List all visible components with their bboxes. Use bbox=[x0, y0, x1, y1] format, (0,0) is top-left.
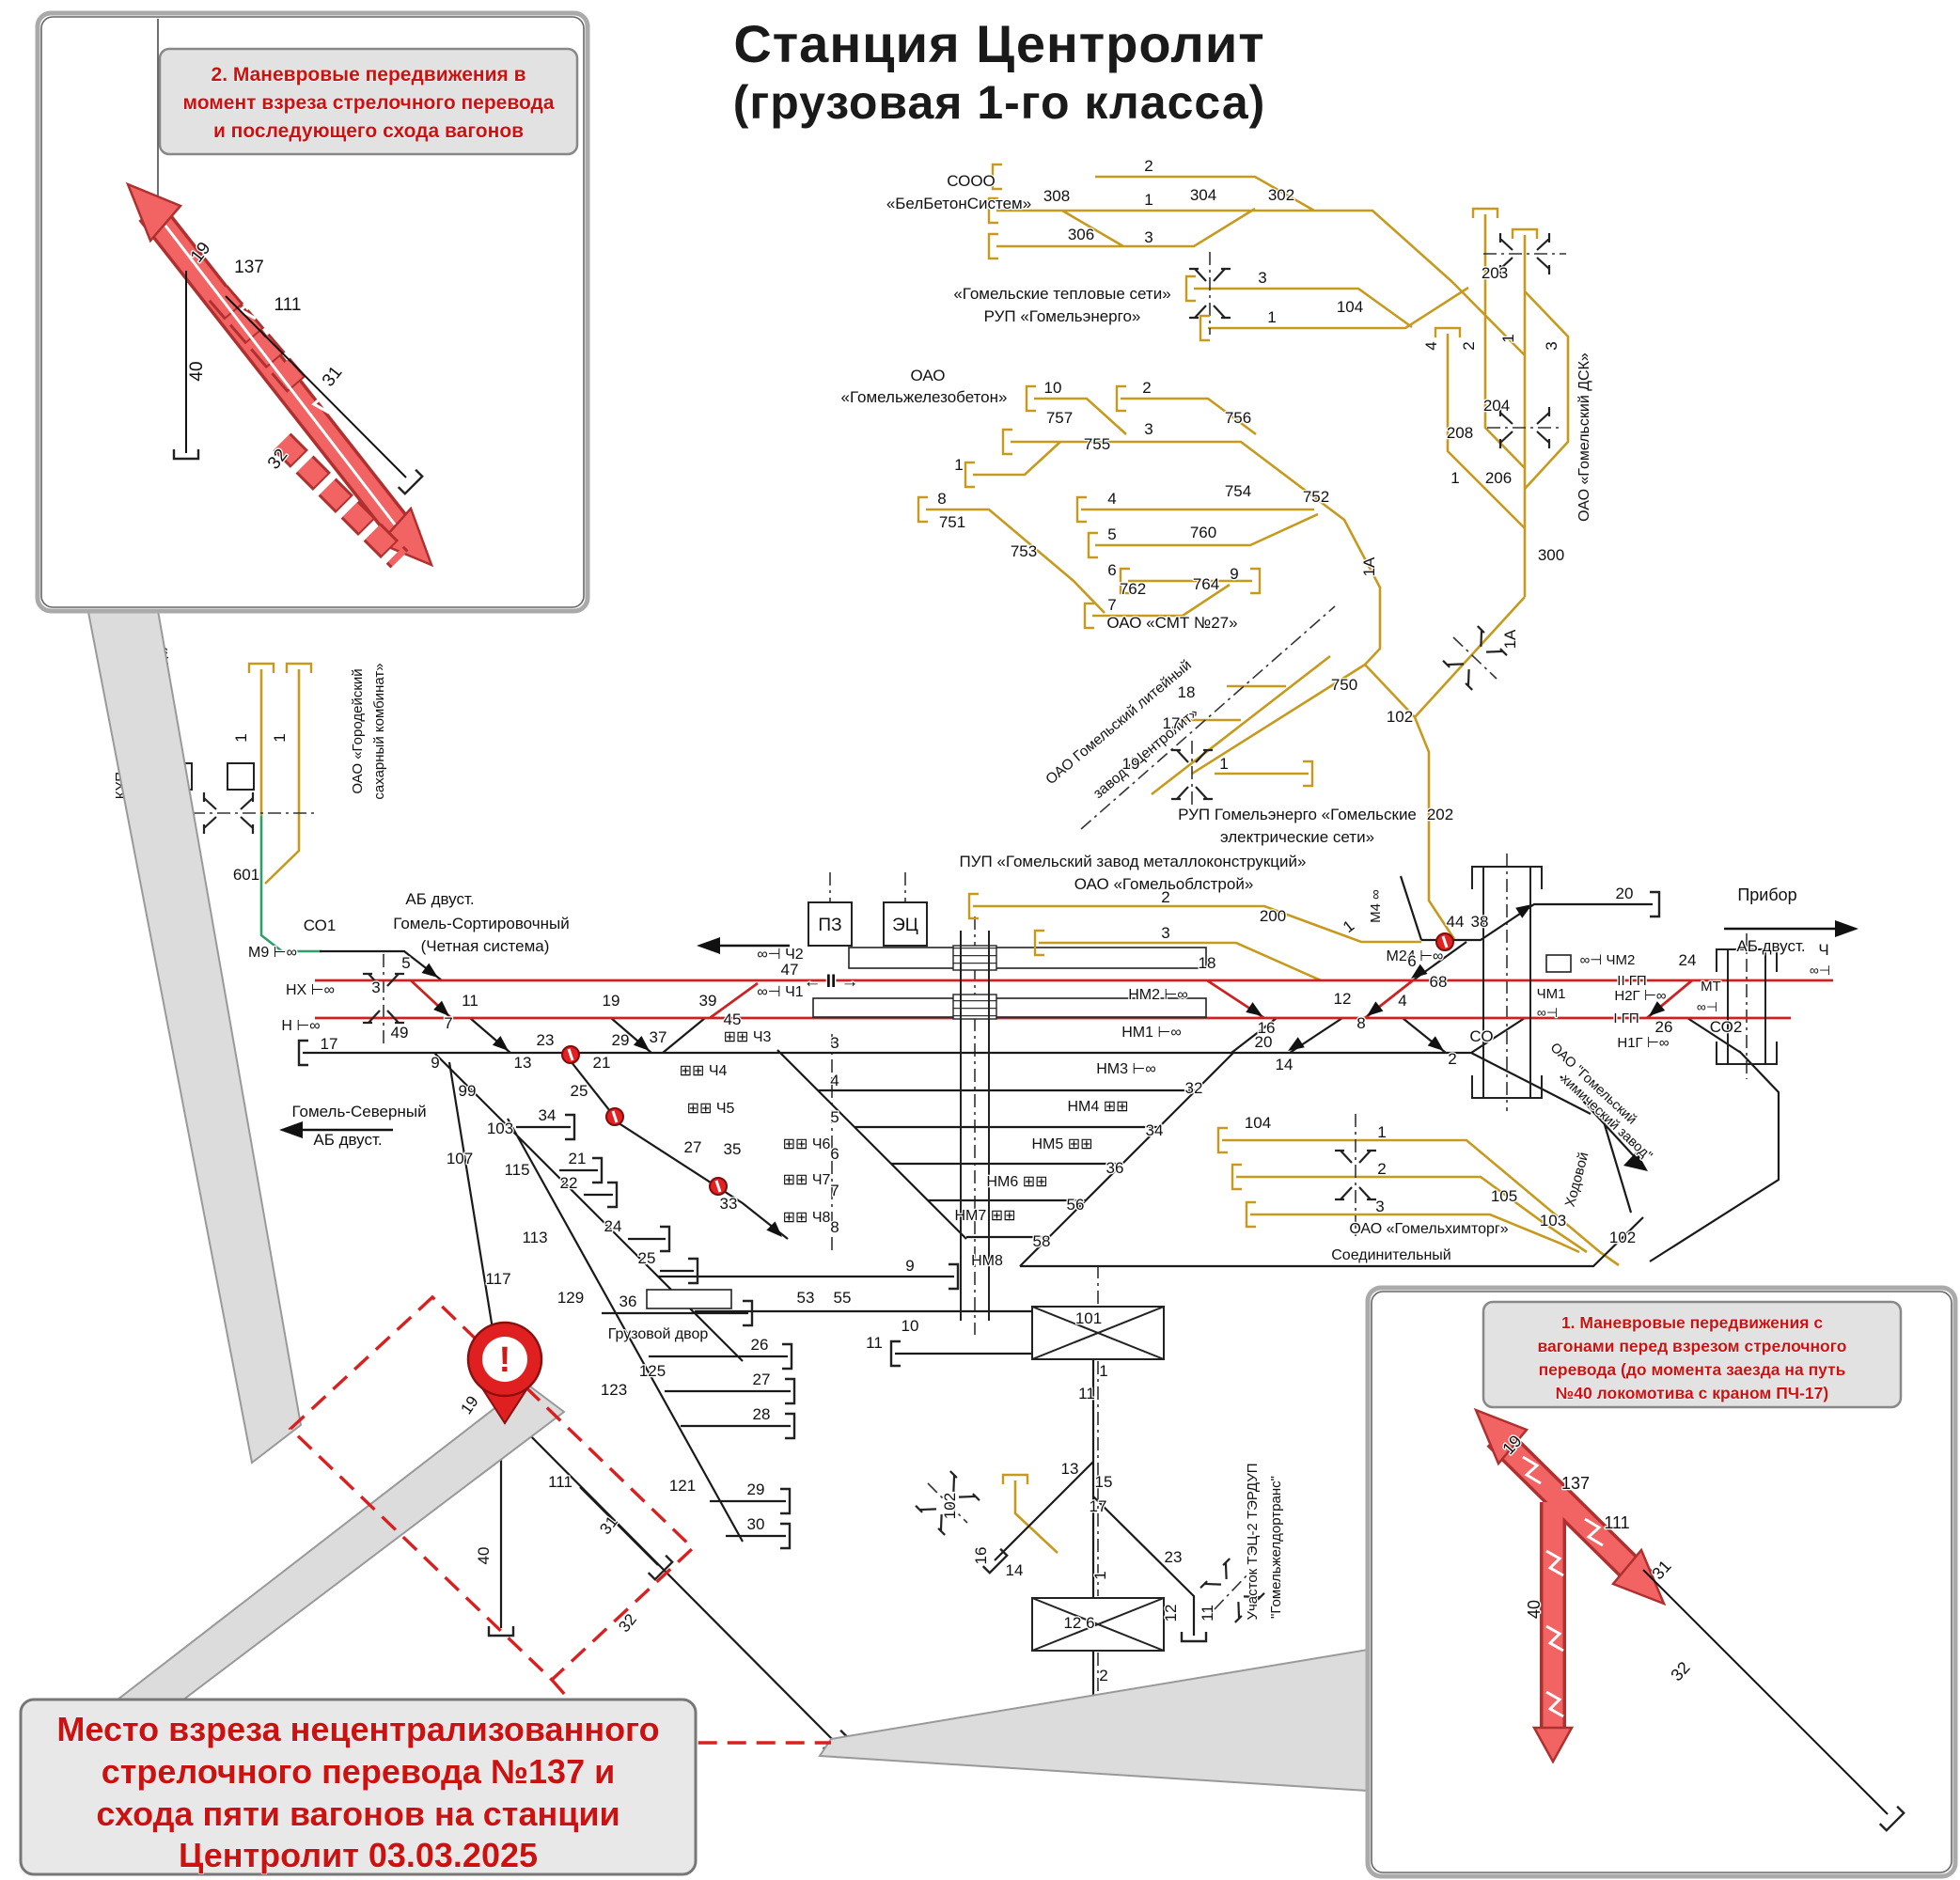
diagram-label: ⊞⊞ Ч7 bbox=[783, 1172, 831, 1188]
diagram-label: 4 bbox=[1398, 992, 1406, 1010]
diagram-label: 58 bbox=[1033, 1232, 1051, 1250]
inset-before-derailment: 19137111403132 1. Маневровые передвижени… bbox=[1368, 1288, 1955, 1876]
incident-note-line: Центролит 03.03.2025 bbox=[179, 1836, 538, 1874]
diagram-label: 102 bbox=[1609, 1229, 1636, 1246]
diagram-label: НМ6 ⊞⊞ bbox=[986, 1174, 1047, 1190]
diagram-label: 107 bbox=[447, 1150, 473, 1167]
diagram-label: ПУП «Гомельский завод металлоконструкций… bbox=[959, 853, 1306, 870]
diagram-label: Гомель-Северный bbox=[291, 1103, 426, 1120]
diagram-label: 300 bbox=[1538, 546, 1564, 564]
diagram-label: 3 bbox=[830, 1034, 839, 1052]
diagram-label: 3 bbox=[1375, 1198, 1384, 1215]
diagram-label: 203 bbox=[1482, 264, 1508, 282]
diagram-label: 26 bbox=[751, 1336, 769, 1354]
diagram-label: ⊞⊞ Ч6 bbox=[783, 1136, 831, 1152]
incident-note-line: схода пяти вагонов на станции bbox=[96, 1794, 619, 1833]
diagram-label: 4 bbox=[830, 1072, 839, 1089]
diagram-label: 1 bbox=[1377, 1123, 1386, 1141]
diagram-label: 34 bbox=[1146, 1121, 1164, 1139]
diagram-label: 9 bbox=[1230, 565, 1238, 583]
diagram-label: 754 bbox=[1225, 482, 1251, 500]
diagram-label: 2 bbox=[1161, 888, 1169, 906]
diagram-label: 56 bbox=[1067, 1196, 1085, 1214]
inset1-title-line: перевода (до момента заезда на путь bbox=[1539, 1360, 1846, 1379]
diagram-label: 11 bbox=[462, 992, 478, 1010]
diagram-label: 757 bbox=[1046, 409, 1073, 427]
diagram-label: 24 bbox=[604, 1217, 622, 1235]
diagram-label: 33 bbox=[720, 1195, 738, 1213]
diagram-label: 123 bbox=[601, 1381, 627, 1399]
diagram-label: 20 bbox=[1255, 1033, 1273, 1051]
diagram-label: 202 bbox=[1427, 806, 1453, 823]
diagram-label: 753 bbox=[1011, 542, 1037, 560]
diagram-label: 53 bbox=[797, 1289, 815, 1307]
diagram-label: 44 bbox=[1447, 913, 1465, 931]
inset1-title-line: 1. Маневровые передвижения с bbox=[1561, 1313, 1823, 1332]
diagram-label: 68 bbox=[1430, 973, 1448, 991]
page-title-line1: Станция Центролит bbox=[733, 14, 1264, 73]
diagram-label: 29 bbox=[747, 1480, 765, 1498]
diagram-label: ОАО «Гомельхимторг» bbox=[1349, 1221, 1508, 1237]
diagram-label: 6 bbox=[1407, 952, 1416, 970]
diagram-label: РУП Гомельэнерго «Гомельские bbox=[1178, 806, 1417, 823]
diagram-label: 2 bbox=[1460, 341, 1478, 350]
diagram-label: 11 bbox=[1199, 1605, 1216, 1621]
diagram-label: электрические сети» bbox=[1220, 828, 1374, 846]
diagram-label: Грузовой двор bbox=[608, 1326, 709, 1342]
inset1-title-line: вагонами перед взрезом стрелочного bbox=[1537, 1337, 1846, 1355]
diagram-label: ⊞⊞ Ч5 bbox=[687, 1101, 735, 1117]
diagram-label: 601 bbox=[233, 866, 259, 884]
incident-note: Место взреза нецентрализованного стрелоч… bbox=[21, 1700, 696, 1874]
diagram-label: ОАО «Городейский bbox=[350, 668, 366, 793]
diagram-label: 751 bbox=[939, 513, 965, 531]
diagram-label: РУП «Гомельэнерго» bbox=[984, 307, 1141, 325]
diagram-label: I ГП bbox=[1613, 1010, 1639, 1026]
diagram-label: 308 bbox=[1043, 187, 1070, 205]
diagram-label: НМ2 ⊢∞ bbox=[1128, 987, 1188, 1003]
diagram-label: 2 bbox=[1144, 157, 1152, 175]
diagram-label: "Гомельжелдортранс" bbox=[1268, 1476, 1284, 1619]
diagram-label: АБ двуст. bbox=[405, 890, 474, 908]
diagram-label: 9 bbox=[905, 1257, 914, 1275]
diagram-label: СО2 bbox=[1710, 1018, 1743, 1036]
diagram-label: НМ7 ⊞⊞ bbox=[954, 1208, 1015, 1224]
diagram-label: 14 bbox=[1006, 1561, 1024, 1579]
diagram-label: 40 bbox=[187, 361, 207, 381]
diagram-label: 756 bbox=[1225, 409, 1251, 427]
diagram-label: Н ⊢∞ bbox=[281, 1018, 320, 1034]
diagram-label: 32 bbox=[615, 1610, 640, 1636]
diagram-label: 15 bbox=[1095, 1473, 1113, 1491]
diagram-label: 20 bbox=[1616, 885, 1634, 902]
diagram-label: ОАО «СМТ №27» bbox=[1106, 614, 1237, 632]
diagram-label: НХ ⊢∞ bbox=[286, 982, 335, 998]
diagram-label: Н1Г ⊢∞ bbox=[1617, 1035, 1670, 1051]
diagram-label: МТ bbox=[1701, 979, 1721, 995]
diagram-label: ЧМ1 bbox=[1537, 986, 1566, 1002]
incident-note-line: стрелочного перевода №137 и bbox=[102, 1752, 615, 1791]
incident-note-line: Место взреза нецентрализованного bbox=[56, 1710, 659, 1748]
inset2-title-line: 2. Маневровые передвижения в bbox=[212, 64, 526, 86]
diagram-label: 9 bbox=[431, 1054, 439, 1072]
diagram-label: 6 bbox=[1107, 561, 1116, 579]
diagram-label: ⊞⊞ Ч3 bbox=[724, 1029, 772, 1045]
diagram-label: 12 bbox=[1162, 1605, 1180, 1622]
diagram-label: ПЗ bbox=[818, 916, 841, 935]
diagram-label: «БелБетонСистем» bbox=[886, 195, 1031, 212]
diagram-label: 4 bbox=[1422, 341, 1440, 350]
diagram-label: 760 bbox=[1190, 524, 1216, 541]
diagram-label: 111 bbox=[1604, 1513, 1629, 1532]
diagram-label: ← II → bbox=[803, 972, 858, 992]
diagram-label: 1 bbox=[954, 456, 963, 474]
diagram-label: 36 bbox=[619, 1292, 637, 1310]
diagram-label: НМ8 bbox=[971, 1253, 1003, 1269]
diagram-label: 7 bbox=[830, 1182, 839, 1199]
diagram-label: 102 bbox=[941, 1493, 959, 1519]
diagram-label: 2 bbox=[1099, 1667, 1107, 1684]
diagram-label: 121 bbox=[669, 1477, 696, 1495]
diagram-label: 26 bbox=[1655, 1018, 1673, 1036]
diagram-label: 37 bbox=[650, 1028, 667, 1046]
diagram-label: (Четная система) bbox=[421, 937, 550, 955]
diagram-label: 1 bbox=[1219, 755, 1228, 773]
diagram-label: 23 bbox=[1165, 1548, 1183, 1566]
diagram-label: НМ5 ⊞⊞ bbox=[1031, 1136, 1092, 1152]
diagram-label: 750 bbox=[1331, 676, 1357, 694]
diagram-label: 10 bbox=[1044, 379, 1062, 397]
diagram-label: 7 bbox=[444, 1014, 452, 1032]
diagram-label: 1 bbox=[1450, 469, 1459, 487]
diagram-label: 32 bbox=[1185, 1079, 1203, 1097]
diagram-label: 24 bbox=[1679, 951, 1697, 969]
diagram-label: 115 bbox=[504, 1161, 529, 1179]
diagram-label: 18 bbox=[1178, 683, 1196, 701]
diagram-label: ⊞⊞ Ч8 bbox=[783, 1210, 831, 1226]
diagram-label: 31 bbox=[596, 1512, 621, 1538]
diagram-label: 5 bbox=[830, 1108, 839, 1126]
diagram-label: 113 bbox=[522, 1229, 547, 1246]
diagram-label: АБ двуст. bbox=[313, 1131, 382, 1149]
diagram-label: М4 ∞ bbox=[1368, 889, 1384, 923]
inset1-title-line: №40 локомотива с краном ПЧ-17) bbox=[1556, 1384, 1828, 1402]
diagram-label: НМ1 ⊢∞ bbox=[1121, 1025, 1182, 1041]
diagram-label: 200 bbox=[1260, 907, 1286, 925]
diagram-label: Соединительный bbox=[1331, 1247, 1451, 1263]
diagram-label: ∞⊣ bbox=[1810, 963, 1830, 978]
diagram-label: 2 bbox=[1377, 1160, 1386, 1178]
diagram-label: ∞⊣ ЧМ2 bbox=[1580, 952, 1636, 968]
diagram-label: 99 bbox=[459, 1082, 477, 1100]
diagram-label: 102 bbox=[1387, 708, 1413, 726]
diagram-label: 111 bbox=[548, 1473, 572, 1491]
diagram-label: 101 bbox=[1075, 1309, 1102, 1327]
diagram-label: 8 bbox=[937, 490, 946, 508]
diagram-label: 45 bbox=[724, 1010, 742, 1028]
diagram-label: 36 bbox=[1106, 1159, 1124, 1177]
diagram-label: 1А bbox=[1360, 556, 1378, 576]
diagram-label: 1 bbox=[232, 733, 250, 742]
diagram-label: 2 bbox=[1142, 379, 1151, 397]
diagram-label: 1 bbox=[1091, 1571, 1109, 1579]
diagram-label: 30 bbox=[747, 1515, 765, 1533]
diagram-label: 35 bbox=[724, 1140, 742, 1158]
callout-wedges bbox=[59, 461, 1368, 1791]
diagram-label: 103 bbox=[1540, 1212, 1566, 1230]
diagram-label: 13 bbox=[514, 1054, 532, 1072]
diagram-label: 25 bbox=[571, 1082, 588, 1100]
diagram-label: ОАО bbox=[910, 367, 945, 384]
diagram-label: 49 bbox=[391, 1024, 409, 1042]
diagram-label: 3 bbox=[1161, 924, 1169, 942]
pin-exclamation: ! bbox=[499, 1340, 511, 1380]
inset2-title-line: и последующего схода вагонов bbox=[213, 120, 524, 142]
diagram-label: Ходовой bbox=[1562, 1151, 1592, 1209]
diagram-label: 111 bbox=[274, 295, 302, 315]
diagram-label: 755 bbox=[1084, 435, 1110, 453]
diagram-label: Ч bbox=[1818, 941, 1828, 959]
diagram-label: 38 bbox=[1471, 913, 1489, 931]
diagram-label: 204 bbox=[1483, 397, 1510, 415]
diagram-label: АБ двуст. bbox=[1736, 937, 1805, 955]
diagram-label: ∞⊣ bbox=[1697, 999, 1717, 1014]
diagram-label: 29 bbox=[612, 1031, 630, 1049]
diagram-label: 11 bbox=[866, 1334, 883, 1352]
station-track-diagram: СООО«БелБетонСистем»308213304306302«Гоме… bbox=[0, 0, 1960, 1880]
diagram-label: 27 bbox=[684, 1138, 702, 1156]
diagram-label: 137 bbox=[1561, 1474, 1590, 1493]
diagram-label: 22 bbox=[560, 1174, 578, 1192]
diagram-label: «Гомельские тепловые сети» bbox=[953, 285, 1170, 303]
diagram-label: 5 bbox=[1107, 525, 1116, 543]
diagram-label: СО bbox=[1469, 1027, 1493, 1045]
diagram-label: СООО bbox=[947, 172, 996, 190]
diagram-label: 17 bbox=[321, 1035, 338, 1053]
diagram-label: 105 bbox=[1491, 1187, 1517, 1205]
diagram-label: 21 bbox=[593, 1054, 611, 1072]
diagram-label: завод «Центролит» bbox=[1090, 705, 1201, 802]
diagram-label: М9 ⊢∞ bbox=[248, 945, 297, 961]
diagram-label: 125 bbox=[639, 1362, 666, 1380]
diagram-label: 17 bbox=[1163, 714, 1181, 732]
diagram-label: Гомель-Сортировочный bbox=[393, 915, 569, 932]
diagram-label: 55 bbox=[834, 1289, 852, 1307]
diagram-label: СО1 bbox=[304, 916, 337, 934]
diagram-label: 21 bbox=[569, 1150, 587, 1167]
diagram-label: 23 bbox=[537, 1031, 555, 1049]
diagram-label: 1 bbox=[1099, 1362, 1107, 1380]
diagram-label: 208 bbox=[1447, 424, 1473, 442]
diagram-label: 25 bbox=[638, 1249, 656, 1267]
diagram-label: 104 bbox=[1337, 298, 1363, 316]
diagram-label: «Гомельжелезобетон» bbox=[841, 388, 1008, 406]
diagram-label: 6 bbox=[830, 1145, 839, 1163]
page-title-line2: (грузовая 1-го класса) bbox=[733, 76, 1266, 129]
diagram-label: 10 bbox=[902, 1317, 919, 1335]
diagram-label: 752 bbox=[1303, 488, 1329, 506]
diagram-label: 5 bbox=[401, 954, 410, 972]
diagram-label: 40 bbox=[1525, 1600, 1544, 1619]
diagram-label: 19 bbox=[457, 1393, 481, 1418]
diagram-label: 762 bbox=[1120, 580, 1146, 598]
diagram-label: 3 bbox=[371, 979, 380, 996]
diagram-label: ЭЦ bbox=[892, 916, 918, 935]
diagram-label: 27 bbox=[753, 1371, 771, 1388]
diagram-label: 1 bbox=[1267, 308, 1276, 326]
diagram-label: 4 bbox=[1107, 490, 1116, 508]
diagram-label: ∞⊣ bbox=[1537, 1005, 1558, 1020]
diagram-label: 2 bbox=[1448, 1050, 1456, 1068]
diagram-label: 28 bbox=[753, 1405, 771, 1423]
diagram-label: 19 bbox=[1122, 755, 1140, 773]
diagram-label: 11 bbox=[1078, 1385, 1095, 1402]
diagram-label: 3 bbox=[1258, 269, 1266, 287]
diagram-label: 1 bbox=[1144, 191, 1152, 209]
diagram-label: 7 bbox=[1107, 596, 1116, 614]
diagram-label: ∞⊣ Ч1 bbox=[757, 984, 803, 1000]
diagram-label: ОАО «Гомельский ДСК» bbox=[1576, 352, 1592, 522]
diagram-label: 3 bbox=[1144, 420, 1152, 438]
diagram-label: 1 bbox=[1499, 334, 1517, 342]
diagram-label: 40 bbox=[475, 1547, 493, 1565]
diagram-label: 1 bbox=[271, 733, 289, 742]
diagram-label: 8 bbox=[830, 1218, 839, 1236]
diagram-label: 19 bbox=[603, 992, 620, 1010]
page-title: Станция Центролит (грузовая 1-го класса) bbox=[733, 14, 1266, 129]
diagram-label: 8 bbox=[1356, 1014, 1365, 1032]
diagram-label: Участок ТЭЦ-2 ТЭРДУП bbox=[1245, 1463, 1261, 1620]
diagram-label: 17 bbox=[1090, 1497, 1107, 1515]
inset-derailment-moment: 19137111403132 2. Маневровые передвижени… bbox=[38, 13, 588, 611]
diagram-label: 12 6 bbox=[1063, 1614, 1094, 1632]
diagram-label: 137 bbox=[234, 258, 264, 277]
diagram-label: Н2Г ⊢∞ bbox=[1614, 988, 1667, 1004]
diagram-label: 103 bbox=[487, 1120, 513, 1137]
diagram-label: НМ4 ⊞⊞ bbox=[1067, 1099, 1128, 1115]
diagram-label: сахарный комбинат» bbox=[371, 663, 387, 799]
diagram-label: 117 bbox=[485, 1270, 510, 1288]
diagram-label: 14 bbox=[1276, 1056, 1294, 1073]
diagram-label: 13 bbox=[1061, 1460, 1079, 1478]
diagram-label: 302 bbox=[1268, 186, 1294, 204]
diagram-label: ⊞⊞ Ч4 bbox=[680, 1063, 728, 1079]
inset2-title-line: момент взреза стрелочного перевода bbox=[182, 92, 554, 114]
diagram-label: 129 bbox=[557, 1289, 584, 1307]
diagram-label: 1 bbox=[1340, 916, 1357, 936]
diagram-label: II ГП bbox=[1617, 973, 1646, 989]
diagram-label: 206 bbox=[1485, 469, 1512, 487]
diagram-label: 18 bbox=[1199, 954, 1216, 972]
diagram-label: 34 bbox=[539, 1106, 557, 1124]
diagram-label: 1А bbox=[1501, 629, 1519, 649]
diagram-label: НМ3 ⊢∞ bbox=[1096, 1061, 1156, 1077]
diagram-label: 47 bbox=[781, 961, 799, 979]
diagram-label: 764 bbox=[1193, 575, 1219, 593]
diagram-label: 12 bbox=[1334, 990, 1352, 1008]
diagram-label: 39 bbox=[699, 992, 717, 1010]
diagram-label: 3 bbox=[1144, 228, 1152, 246]
diagram-label: 3 bbox=[1543, 341, 1560, 350]
diagram-label: 306 bbox=[1068, 226, 1094, 243]
diagram-label: 16 bbox=[972, 1547, 990, 1565]
diagram-label: 304 bbox=[1190, 186, 1216, 204]
diagram-label: 104 bbox=[1245, 1114, 1271, 1132]
diagram-label: Прибор bbox=[1737, 885, 1796, 904]
